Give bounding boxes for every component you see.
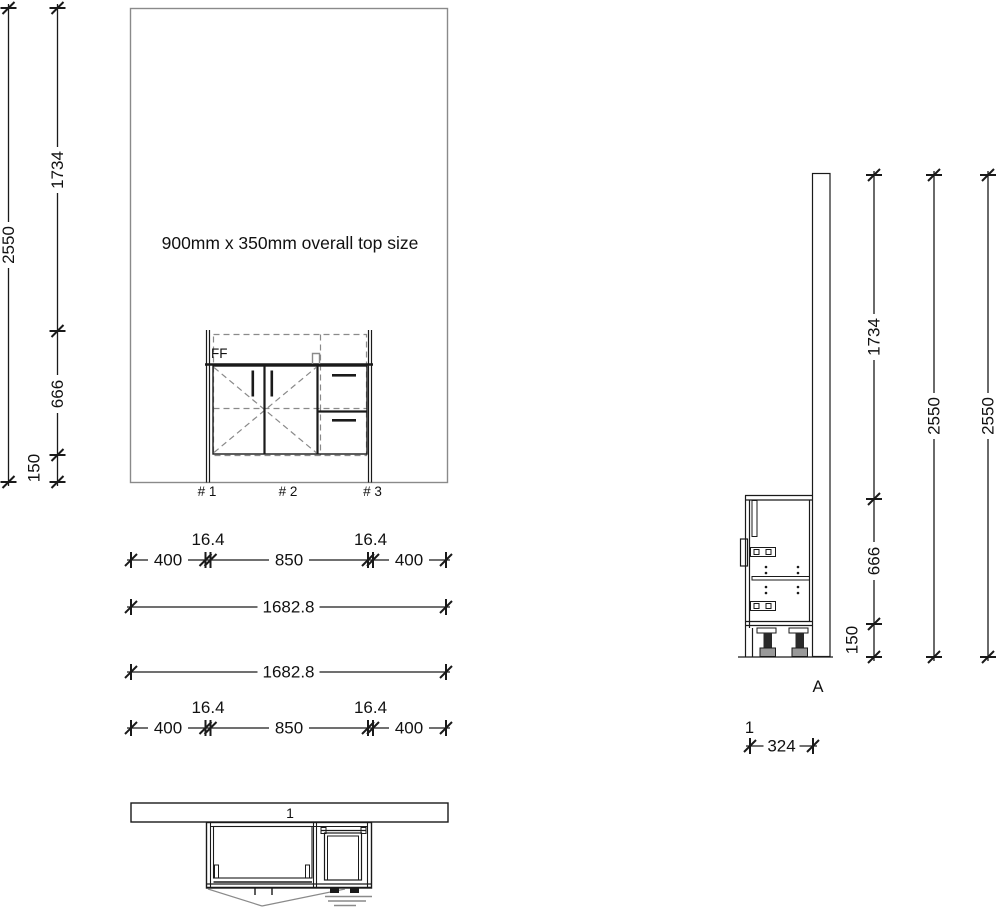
drawer-box-inner bbox=[328, 836, 359, 880]
dim-middle-height: 666 bbox=[48, 375, 67, 413]
dim-left-offset-row4: 400 bbox=[148, 719, 188, 738]
drawer-box-outer bbox=[325, 833, 362, 880]
dashed-carcase-outline bbox=[214, 335, 367, 456]
plinth-ticks bbox=[255, 888, 272, 895]
svg-text:400: 400 bbox=[154, 719, 182, 738]
handle-profile bbox=[741, 539, 748, 566]
svg-text:400: 400 bbox=[154, 551, 182, 570]
svg-text:1682.8: 1682.8 bbox=[263, 663, 315, 682]
leg-plate-left bbox=[757, 628, 776, 633]
svg-text:666: 666 bbox=[865, 547, 884, 575]
svg-text:400: 400 bbox=[395, 719, 423, 738]
dim-side-upper: 1734 bbox=[865, 314, 884, 360]
open-compartment bbox=[214, 827, 313, 879]
door-handle-left bbox=[252, 371, 255, 397]
ground-hatch bbox=[325, 897, 372, 906]
svg-text:2550: 2550 bbox=[925, 397, 944, 435]
dim-plinth-height: 150 bbox=[25, 454, 44, 482]
svg-text:1734: 1734 bbox=[865, 318, 884, 356]
dim-side-total-1: 2550 bbox=[925, 393, 944, 439]
svg-text:2550: 2550 bbox=[0, 226, 18, 264]
svg-text:850: 850 bbox=[275, 719, 303, 738]
leg-shaft-left bbox=[764, 633, 773, 648]
position-label-2: # 2 bbox=[279, 484, 298, 499]
dim-right-offset-row1: 400 bbox=[389, 551, 429, 570]
dim-left-offset-row1: 400 bbox=[148, 551, 188, 570]
section-label: A bbox=[812, 678, 823, 696]
dim-side-middle: 666 bbox=[865, 542, 884, 580]
wall-number-label: 1 bbox=[286, 805, 294, 821]
drawer-handle-top bbox=[332, 374, 356, 377]
foot-plan-right bbox=[350, 889, 359, 894]
svg-text:150: 150 bbox=[25, 454, 44, 482]
shelf-side bbox=[752, 577, 810, 581]
svg-text:400: 400 bbox=[395, 551, 423, 570]
side-elevation: A 1 bbox=[738, 174, 833, 738]
dim-side-plinth: 150 bbox=[843, 626, 862, 654]
dim-panel-thickness-right-row4: 16.4 bbox=[354, 698, 387, 717]
item-number-label: 1 bbox=[745, 719, 754, 737]
ff-label: FF bbox=[211, 346, 228, 361]
technical-drawing: 900mm x 350mm overall top size FF # 1 # … bbox=[0, 0, 1000, 908]
drawer-bank-divider bbox=[318, 365, 368, 455]
leg-foot-left bbox=[760, 648, 776, 657]
svg-text:666: 666 bbox=[48, 380, 67, 408]
door-swing-lines bbox=[208, 889, 345, 906]
base-cabinet-side bbox=[738, 496, 833, 658]
dim-panel-thickness-right-row1: 16.4 bbox=[354, 530, 387, 549]
front-elevation: 900mm x 350mm overall top size FF # 1 # … bbox=[131, 9, 448, 500]
svg-text:1682.8: 1682.8 bbox=[263, 598, 315, 617]
leg-shaft-right bbox=[796, 633, 805, 648]
dim-total-height: 2550 bbox=[0, 222, 18, 268]
front-vertical-dimensions: 2550 1734 666 150 bbox=[0, 2, 67, 488]
connector-pin bbox=[754, 604, 759, 609]
hinge-block-left bbox=[215, 865, 219, 878]
dim-overall-width-2: 1682.8 bbox=[258, 663, 320, 682]
leg-plate-right bbox=[789, 628, 808, 633]
dashed-drawer-line bbox=[214, 335, 367, 456]
base-cabinet-front: FF bbox=[205, 330, 373, 483]
connector-pin bbox=[766, 604, 771, 609]
dim-panel-thickness-left-row1: 16.4 bbox=[191, 530, 224, 549]
drawer-handle-bottom bbox=[332, 419, 356, 422]
leg-foot-right bbox=[792, 648, 808, 657]
door-handle-right bbox=[271, 371, 274, 397]
svg-text:324: 324 bbox=[767, 737, 795, 756]
svg-text:150: 150 bbox=[843, 626, 862, 654]
cabinet-posts bbox=[207, 330, 372, 483]
dim-depth: 324 bbox=[764, 737, 800, 756]
svg-text:850: 850 bbox=[275, 551, 303, 570]
cabinet-front-outline bbox=[213, 366, 367, 454]
dim-cabinet-width-row1: 850 bbox=[269, 551, 309, 570]
plan-view: 1 bbox=[131, 803, 448, 906]
side-dimensions: 1734 666 150 2550 2550 324 bbox=[744, 169, 998, 756]
dim-overall-width-1: 1682.8 bbox=[258, 598, 320, 617]
top-size-annotation: 900mm x 350mm overall top size bbox=[162, 233, 419, 253]
foot-plan-left bbox=[330, 889, 339, 894]
connector-pin bbox=[766, 550, 771, 555]
front-horizontal-dimensions: 400 850 400 16.4 16.4 1682.8 1682.8 bbox=[125, 530, 452, 738]
base-cabinet-plan bbox=[207, 823, 373, 907]
hinge-block-right bbox=[306, 865, 310, 878]
dim-panel-thickness-left-row4: 16.4 bbox=[191, 698, 224, 717]
dim-right-offset-row4: 400 bbox=[389, 719, 429, 738]
dim-cabinet-width-row4: 850 bbox=[269, 719, 309, 738]
svg-text:2550: 2550 bbox=[979, 397, 998, 435]
connector-pin bbox=[754, 550, 759, 555]
position-label-1: # 1 bbox=[198, 484, 217, 499]
tall-panel-side bbox=[813, 174, 831, 657]
dim-upper-height: 1734 bbox=[48, 147, 67, 193]
drawer-front-edge bbox=[752, 501, 757, 537]
dim-side-total-2: 2550 bbox=[979, 393, 998, 439]
svg-text:1734: 1734 bbox=[48, 151, 67, 189]
cad-drawing-canvas: 900mm x 350mm overall top size FF # 1 # … bbox=[0, 0, 1000, 908]
position-label-3: # 3 bbox=[363, 484, 382, 499]
top-notch bbox=[313, 354, 320, 365]
